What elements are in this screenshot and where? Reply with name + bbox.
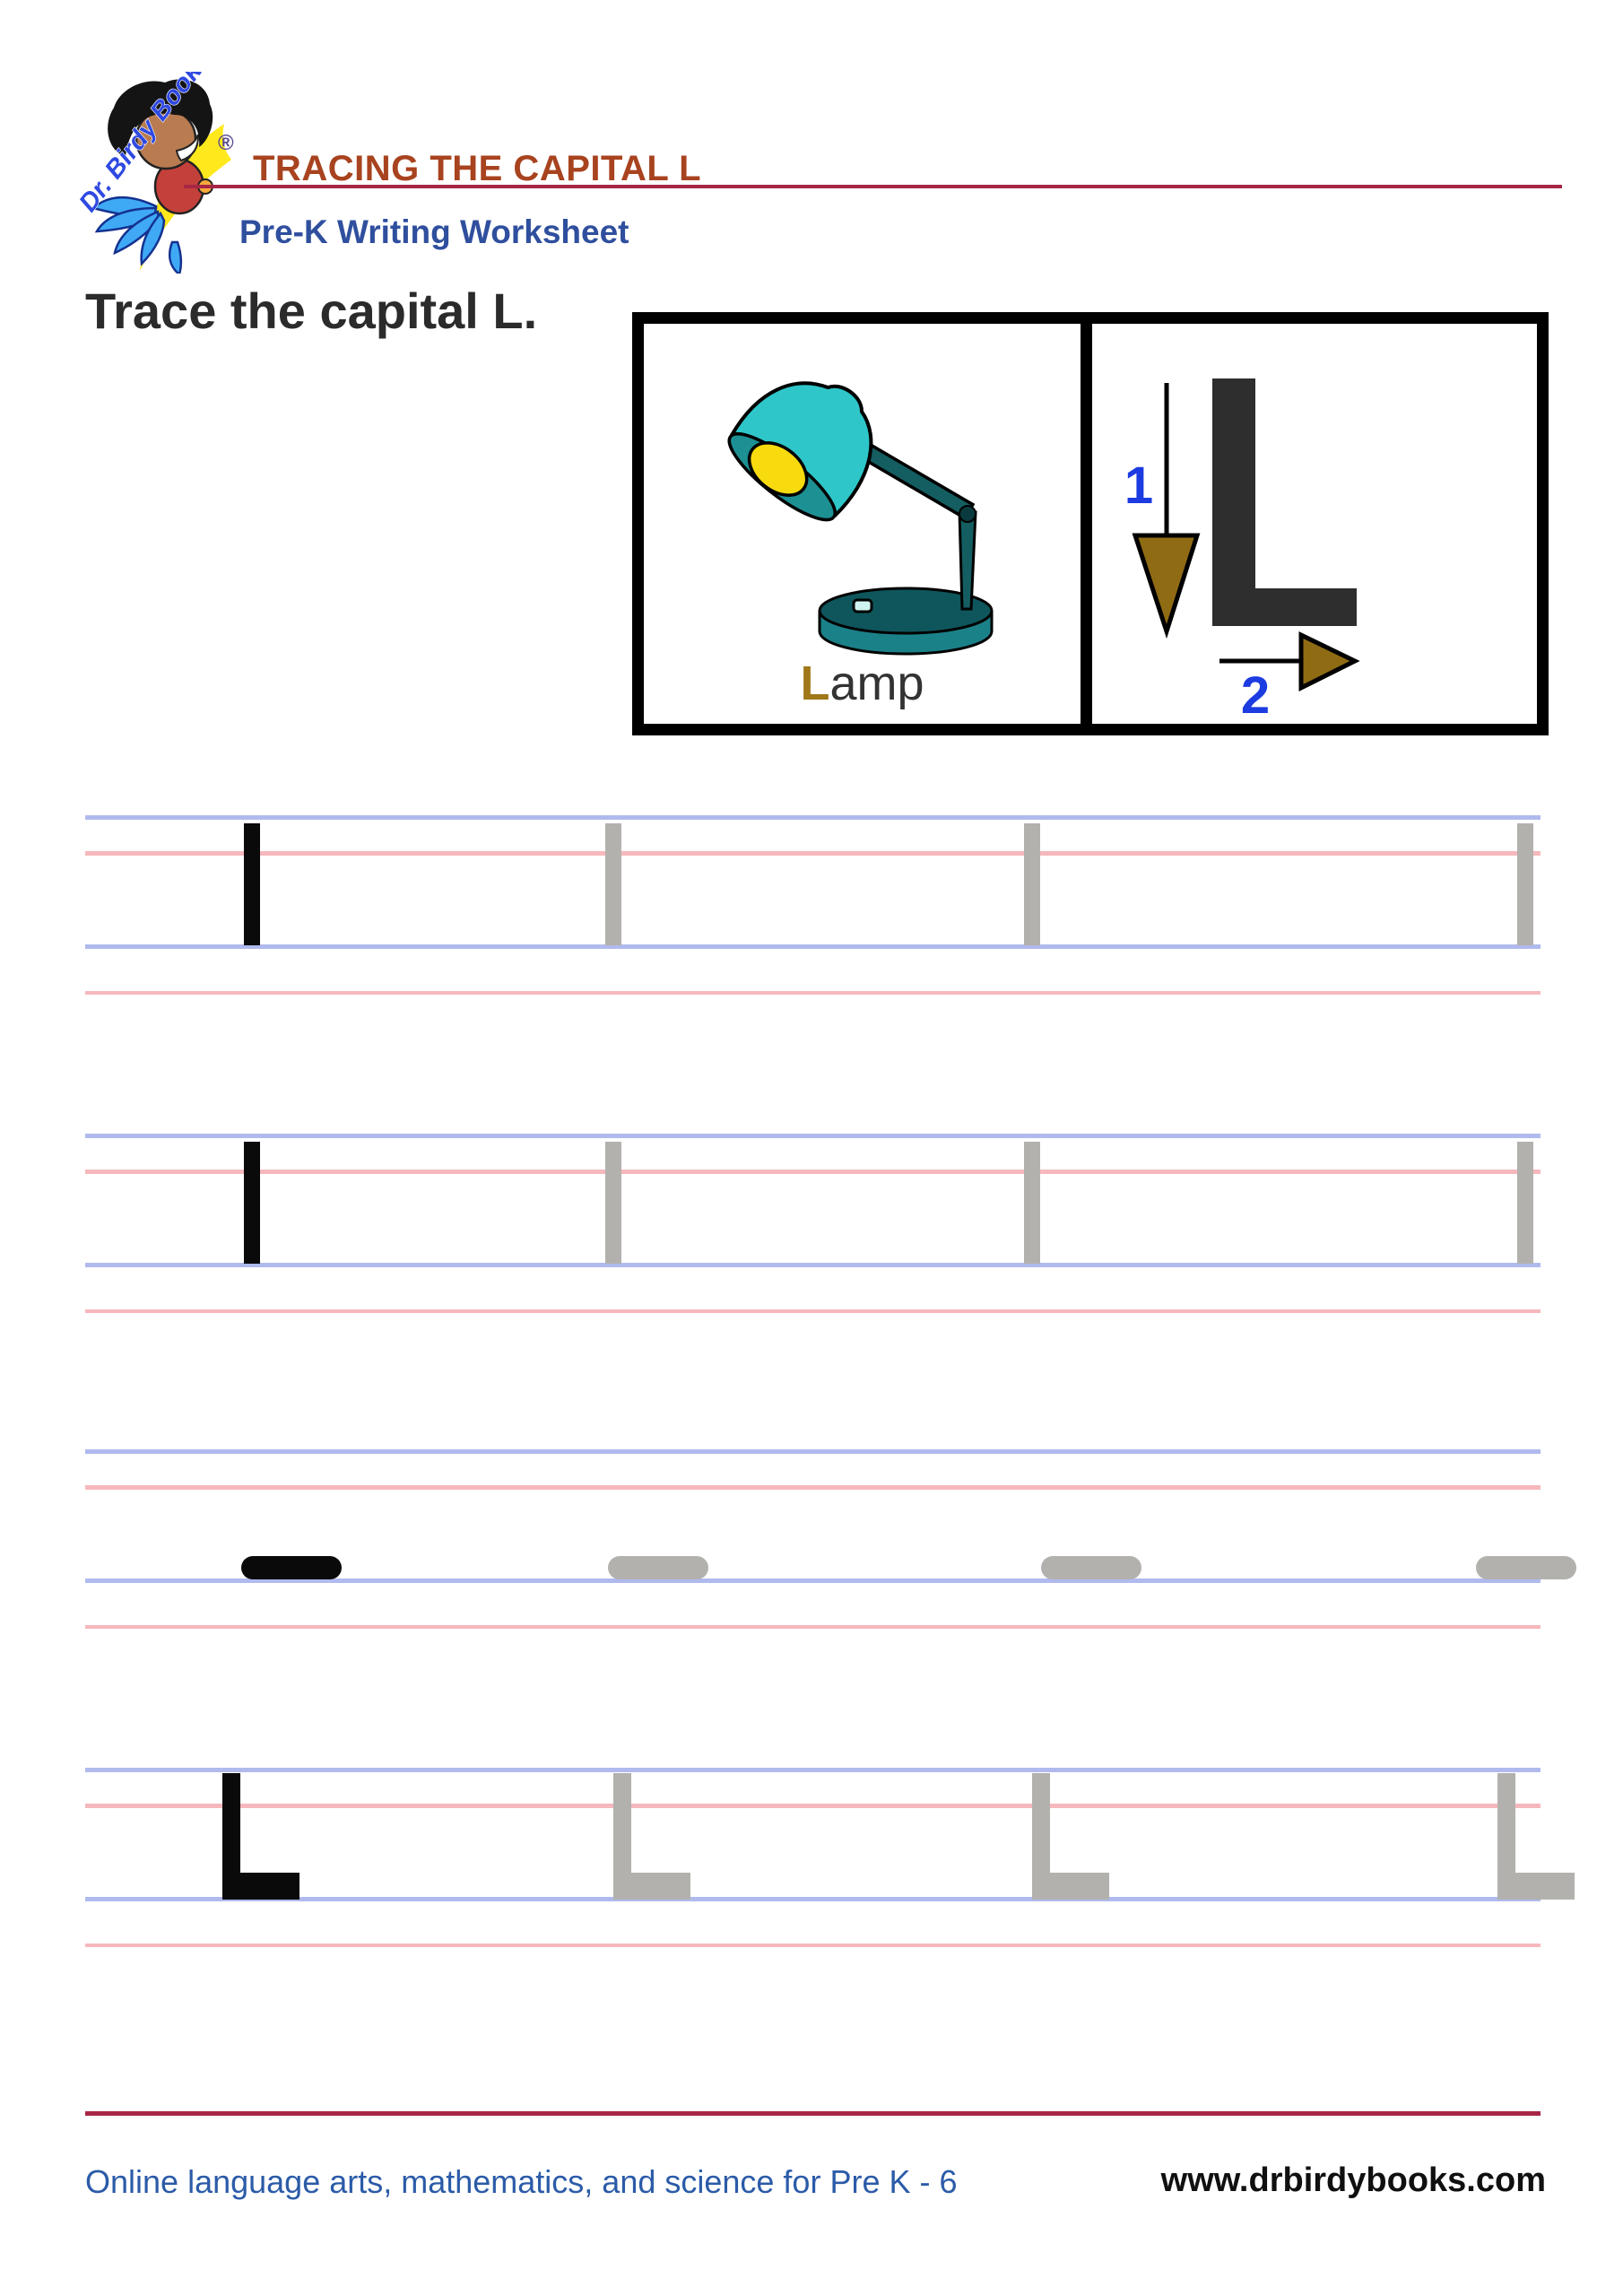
page-title: TRACING THE CAPITAL L: [253, 149, 701, 189]
blue-guide-line: [85, 1134, 1541, 1138]
header-rule: [184, 185, 1562, 188]
l-glyph-foot: [1497, 1873, 1575, 1900]
lamp-illustration: [674, 335, 1051, 657]
red-guide-line: [85, 1309, 1541, 1313]
red-guide-line: [85, 1625, 1541, 1629]
trace-stem-glyph: [1024, 823, 1040, 945]
page-subtitle: Pre-K Writing Worksheet: [239, 213, 629, 251]
word-rest: amp: [829, 657, 924, 710]
footer-tagline: Online language arts, mathematics, and s…: [85, 2163, 958, 2201]
example-stem-glyph: [244, 1142, 260, 1264]
red-guide-line: [85, 1944, 1541, 1947]
blue-guide-line: [85, 944, 1541, 949]
stroke-1-label: 1: [1124, 457, 1153, 515]
worksheet-page: Dr. Birdy Books ® TRACING THE CAPITAL L …: [0, 0, 1623, 2296]
red-guide-line: [85, 991, 1541, 995]
trace-ell-glyph: [1032, 1773, 1109, 1900]
red-guide-line: [85, 1485, 1541, 1490]
blue-guide-line: [85, 1263, 1541, 1267]
trace-stem-glyph: [1517, 1142, 1533, 1264]
example-word: Lamp: [800, 659, 924, 708]
trace-stem-glyph: [1517, 823, 1533, 945]
lamp-switch: [854, 600, 872, 612]
trace-bar-glyph: [1041, 1556, 1141, 1579]
stroke-1-arrow-head: [1135, 535, 1197, 631]
red-guide-line: [85, 851, 1541, 856]
blue-guide-line: [85, 1768, 1541, 1772]
blue-guide-line: [85, 1449, 1541, 1454]
example-box: Lamp 1 2: [632, 312, 1549, 735]
red-guide-line: [85, 1804, 1541, 1808]
blue-guide-line: [85, 815, 1541, 820]
registered-trademark: ®: [218, 131, 234, 156]
practice-row: [85, 1449, 1541, 1629]
example-bar-glyph: [241, 1556, 342, 1579]
trace-stem-glyph: [1024, 1142, 1040, 1264]
example-image-panel: Lamp: [644, 324, 1081, 724]
bird-character-logo: Dr. Birdy Books: [74, 72, 244, 274]
practice-row: [85, 815, 1541, 995]
trace-bar-glyph: [1476, 1556, 1576, 1579]
stroke-2-label: 2: [1241, 666, 1270, 724]
trace-stem-glyph: [605, 1142, 621, 1264]
practice-row: [85, 1768, 1541, 1947]
panel-divider: [1081, 324, 1092, 724]
example-ell-glyph: [222, 1773, 299, 1900]
trace-stem-glyph: [605, 823, 621, 945]
stroke-order-panel: 1 2: [1092, 324, 1537, 724]
letter-stroke-diagram: 1 2: [1092, 324, 1537, 724]
practice-row: [85, 1134, 1541, 1313]
stroke-2-arrow-head: [1301, 635, 1355, 688]
example-stem-glyph: [244, 823, 260, 945]
l-glyph-foot: [222, 1873, 299, 1900]
instruction-heading: Trace the capital L.: [85, 282, 537, 340]
trace-bar-glyph: [608, 1556, 708, 1579]
l-glyph-foot: [613, 1873, 690, 1900]
trace-ell-glyph: [1497, 1773, 1575, 1900]
trace-ell-glyph: [613, 1773, 690, 1900]
l-glyph-foot: [1032, 1873, 1109, 1900]
red-guide-line: [85, 1170, 1541, 1174]
word-initial-letter: L: [800, 657, 829, 710]
blue-guide-line: [85, 1897, 1541, 1901]
footer-rule: [85, 2111, 1541, 2116]
footer-website: www.drbirdybooks.com: [1161, 2161, 1546, 2200]
letter-l-foot: [1212, 588, 1357, 626]
